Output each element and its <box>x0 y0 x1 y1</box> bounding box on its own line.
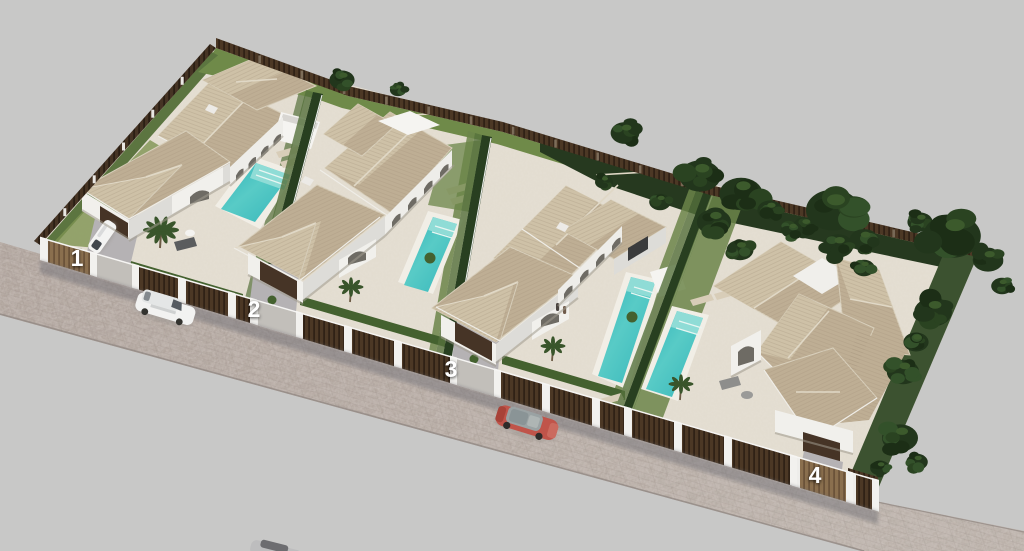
svg-text:1: 1 <box>71 245 84 271</box>
svg-text:3: 3 <box>445 356 458 382</box>
svg-text:2: 2 <box>248 296 261 322</box>
svg-text:4: 4 <box>809 462 822 488</box>
